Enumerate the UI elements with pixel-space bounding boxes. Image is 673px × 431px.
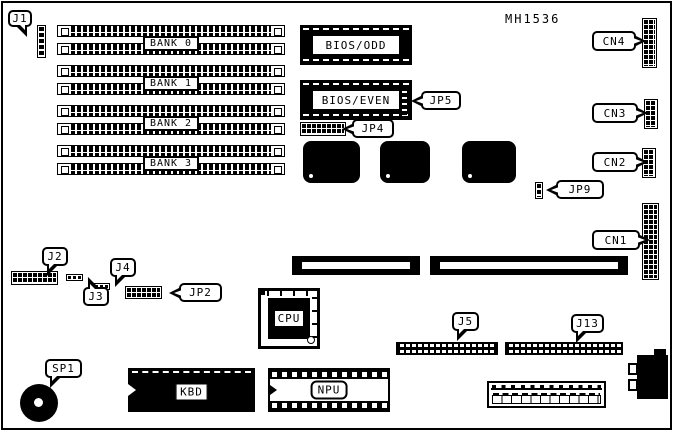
connector-bar	[491, 388, 602, 390]
cpu-die: CPU	[268, 298, 310, 339]
jp2-header	[125, 286, 162, 299]
callout-cn3: CN3	[592, 103, 638, 123]
simm-slot-end	[58, 164, 71, 174]
kbd-label: KBD	[175, 384, 208, 401]
cpu-corner-notch	[258, 288, 265, 295]
callout-jp9: JP9	[556, 180, 604, 199]
simm-slot-end	[58, 84, 71, 94]
qfp-chip-1	[303, 141, 360, 183]
simm-slot-end	[271, 26, 284, 36]
bios-even-chip: BIOS/EVEN	[300, 80, 412, 120]
power-connector	[637, 355, 668, 399]
callout-cn2: CN2	[592, 152, 638, 172]
jp4-header	[300, 122, 346, 136]
simm-slot-contacts	[71, 106, 271, 116]
kbd-chip: KBD	[128, 368, 255, 412]
simm-slot-end	[58, 44, 71, 54]
simm-slot-end	[58, 106, 71, 116]
bottom-pin-connector	[487, 381, 606, 408]
simm-slot-end	[271, 124, 284, 134]
simm-slot-contacts	[71, 66, 271, 76]
bank1-label: BANK 1	[143, 76, 199, 91]
npu-notch-icon	[270, 385, 277, 395]
callout-j4: J4	[110, 258, 136, 277]
bank3-label: BANK 3	[143, 156, 199, 171]
simm-slot-end	[58, 66, 71, 76]
callout-j13: J13	[571, 314, 604, 333]
speaker	[20, 384, 58, 422]
bus-slot-left	[292, 256, 420, 275]
simm-slot-end	[271, 44, 284, 54]
j1-header	[37, 25, 46, 58]
simm-slot-end	[271, 84, 284, 94]
callout-j2: J2	[42, 247, 68, 266]
motherboard-diagram: MH1536 BANK 0 BANK 1 BANK 2 BANK 3 BIOS/…	[0, 0, 673, 431]
callout-j3: J3	[83, 287, 109, 306]
cpu-pin1-dot	[307, 336, 315, 344]
simm-slot-end	[271, 146, 284, 156]
simm-slot-end	[271, 66, 284, 76]
callout-jp5: JP5	[421, 91, 461, 110]
simm-slot-end	[271, 106, 284, 116]
npu-socket: NPU	[268, 368, 390, 412]
callout-cn4: CN4	[592, 31, 636, 51]
simm-slot-contacts	[71, 146, 271, 156]
bios-odd-chip: BIOS/ODD	[300, 25, 412, 65]
power-tab-1	[628, 363, 638, 375]
callout-sp1: SP1	[45, 359, 82, 378]
kbd-notch-icon	[128, 384, 136, 396]
connector-boxes	[492, 395, 601, 404]
simm-slot-end	[271, 164, 284, 174]
callout-j1: J1	[8, 10, 32, 27]
cpu-label: CPU	[274, 310, 305, 327]
qfp-chip-2	[380, 141, 430, 183]
simm-slot-end	[58, 146, 71, 156]
callout-j5: J5	[452, 312, 479, 331]
callout-cn1: CN1	[592, 230, 640, 250]
bios-odd-label: BIOS/ODD	[313, 36, 399, 54]
callout-jp2: JP2	[179, 283, 222, 302]
bus-slot-right	[430, 256, 628, 275]
callout-jp4: JP4	[352, 119, 394, 138]
jp5-jumper	[400, 85, 409, 118]
simm-slot-end	[58, 124, 71, 134]
j5-header	[396, 342, 498, 355]
j13-header	[505, 342, 623, 355]
jp9-jumper	[535, 182, 543, 199]
bank2-label: BANK 2	[143, 116, 199, 131]
simm-slot-contacts	[71, 26, 271, 36]
npu-label: NPU	[311, 381, 348, 400]
board-part-number: MH1536	[505, 12, 560, 26]
bios-even-label: BIOS/EVEN	[313, 91, 399, 109]
bank0-label: BANK 0	[143, 36, 199, 51]
simm-slot-end	[58, 26, 71, 36]
cpu-socket: CPU	[258, 288, 320, 349]
qfp-chip-3	[462, 141, 516, 183]
power-tab-2	[628, 379, 638, 391]
j3-jumper	[66, 274, 83, 281]
